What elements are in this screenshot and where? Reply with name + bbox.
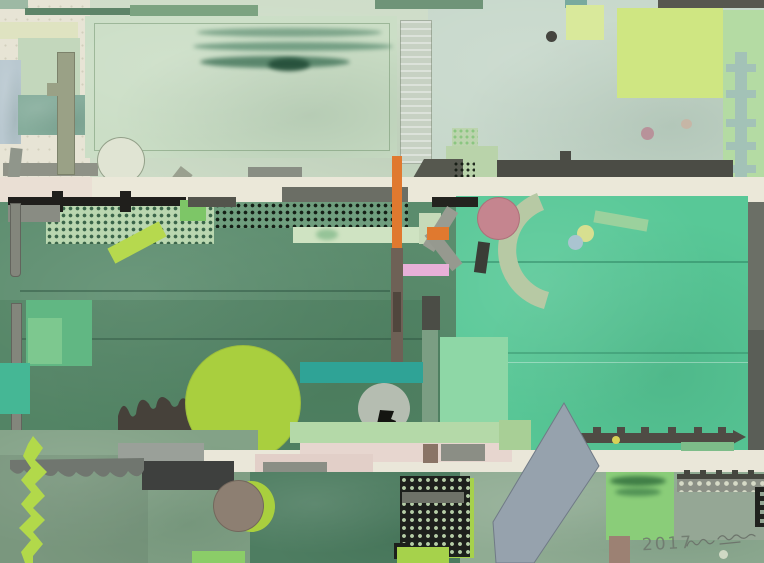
black-notched-piece: [755, 487, 764, 527]
mid-green-square-inner: [28, 318, 62, 364]
water-streak-1: [197, 28, 382, 37]
teal-seam: [500, 362, 748, 363]
film-strip-rung: [726, 142, 756, 150]
brown-circle-bottom: [213, 480, 264, 532]
gray-bar-mid: [282, 187, 408, 202]
track-crossbar: [120, 191, 131, 212]
black-dots-mini: [453, 161, 475, 178]
pink-circle: [477, 197, 520, 240]
track-notch-top: [560, 151, 571, 162]
field-seam: [20, 290, 390, 292]
olive-notch: [47, 83, 58, 96]
top-green-bar-2: [130, 5, 258, 16]
pink-bar: [397, 264, 449, 276]
lime-totem-strip: [16, 436, 50, 563]
light-green-band: [290, 422, 510, 443]
top-right-dark-bar: [658, 0, 764, 8]
blue-circle: [568, 235, 583, 250]
olive-stick: [57, 52, 75, 175]
corner-teal-tab: [0, 0, 28, 9]
blue-gray-slab: [492, 400, 602, 563]
green-vertical-stick: [422, 330, 438, 428]
film-strip-rung: [726, 119, 756, 127]
black-bar-segment: [432, 197, 478, 207]
signature-block: 2017: [642, 533, 694, 556]
dark-vertical-inner: [393, 292, 401, 332]
teal-textured-rect: [18, 95, 88, 135]
left-stick-upper: [10, 203, 21, 277]
film-strip-rung: [726, 64, 756, 72]
brown-patch-mid: [423, 444, 438, 463]
teal-h-bar: [300, 362, 423, 383]
pale-bar-mid: [293, 227, 428, 243]
dark-circle-top: [546, 31, 557, 42]
rose-circle-top: [641, 127, 654, 140]
gray-bar-over-dots: [402, 492, 464, 503]
charcoal-rect: [142, 461, 234, 490]
artist-signature-scribble: [684, 530, 764, 554]
yellow-dot: [612, 436, 620, 444]
film-strip-rung: [726, 90, 756, 98]
orange-h-bar: [427, 227, 449, 240]
pale-bar-smudge: [316, 229, 338, 240]
top-green-bar-1: [25, 8, 133, 15]
dotted-gray-band: [677, 479, 764, 492]
track-gray-segment: [188, 197, 236, 207]
paint-smudge: [610, 476, 666, 486]
artwork-canvas: 2017: [0, 0, 764, 563]
top-green-bar-3: [375, 0, 483, 9]
yellow-square-small: [566, 5, 604, 40]
ladder-column: [400, 20, 432, 164]
water-streak-blob: [268, 58, 310, 71]
orange-vertical-bar: [392, 156, 402, 258]
pale-yellow-patch: [0, 22, 78, 39]
beige-circle-top: [681, 119, 692, 129]
track-bar-top-right: [497, 160, 733, 178]
water-streak-2: [193, 42, 393, 51]
brown-rect-bottom: [609, 536, 630, 563]
lime-strip-bottom: [397, 547, 449, 563]
green-square-bottom: [192, 551, 245, 563]
paint-smudge: [615, 488, 661, 496]
black-dots-square: [400, 476, 470, 557]
year-inscription: 2017: [642, 533, 694, 556]
yellow-square-large: [617, 8, 723, 98]
teal-seam: [500, 352, 748, 354]
dark-block: [422, 296, 440, 330]
dotted-band-right: [214, 202, 408, 228]
green-strip-right: [681, 442, 734, 451]
gray-patch-mid: [441, 444, 485, 461]
right-gray-column-lower: [748, 330, 764, 450]
teal-square: [0, 363, 30, 414]
